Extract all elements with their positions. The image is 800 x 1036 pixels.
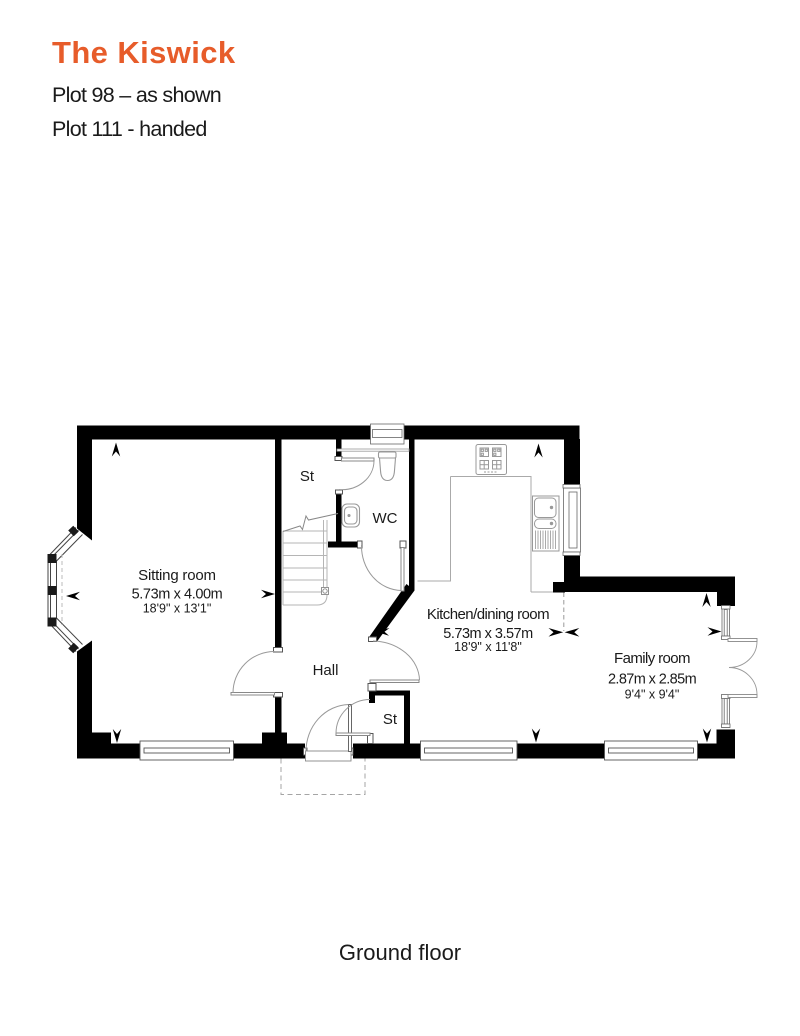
svg-text:Sitting room: Sitting room: [138, 567, 216, 584]
svg-text:St: St: [383, 711, 398, 728]
svg-text:WC: WC: [373, 510, 398, 527]
svg-text:Family room: Family room: [614, 650, 690, 667]
svg-text:Kitchen/dining room: Kitchen/dining room: [427, 606, 549, 623]
svg-text:Hall: Hall: [313, 662, 339, 679]
svg-text:18'9" x 13'1": 18'9" x 13'1": [143, 602, 212, 616]
svg-text:St: St: [300, 468, 315, 485]
svg-text:5.73m x 4.00m: 5.73m x 4.00m: [132, 587, 223, 603]
svg-text:9'4" x 9'4": 9'4" x 9'4": [625, 688, 680, 702]
svg-text:18'9" x 11'8": 18'9" x 11'8": [454, 640, 522, 654]
svg-text:2.87m x 2.85m: 2.87m x 2.85m: [608, 672, 697, 688]
